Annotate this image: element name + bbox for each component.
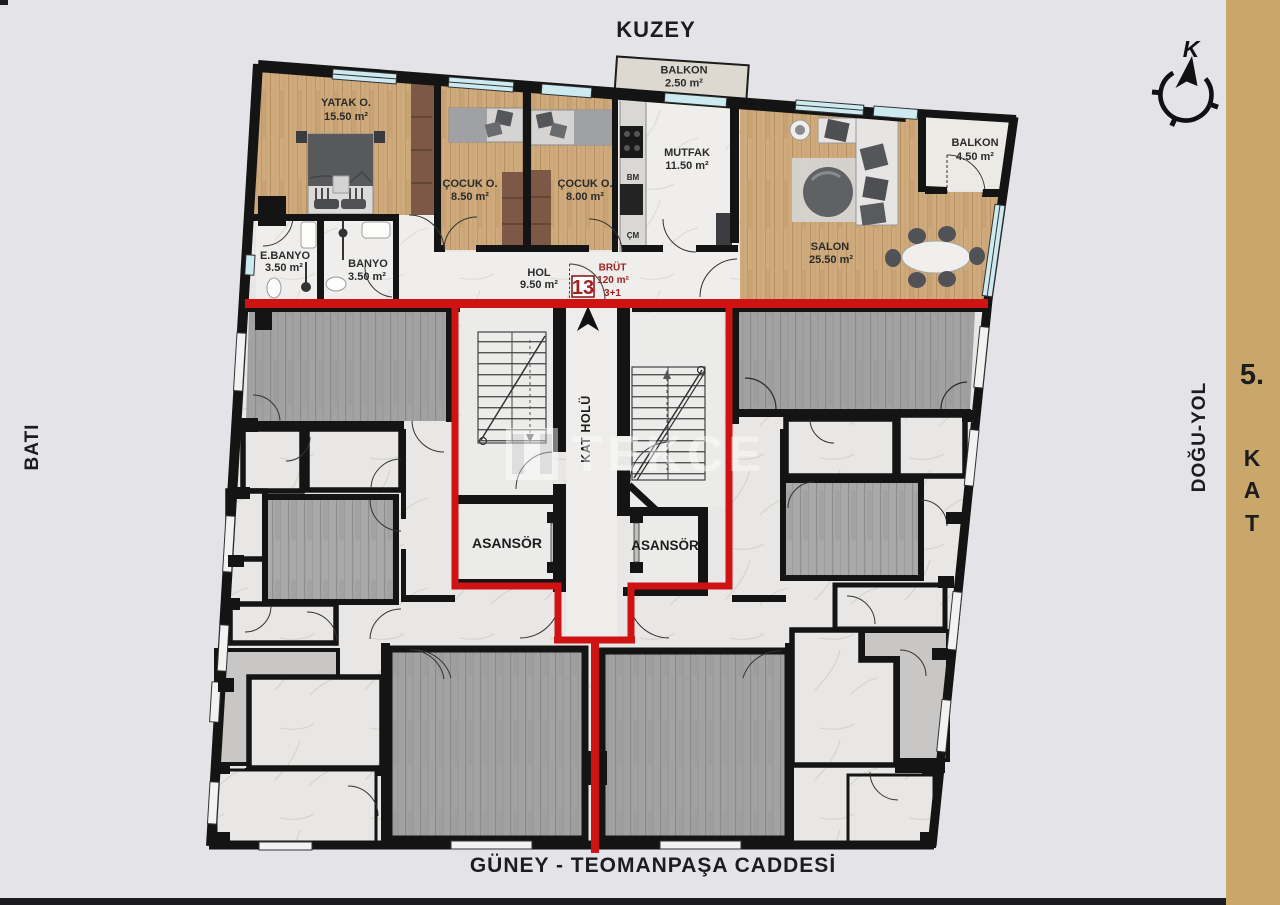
svg-text:ÇM: ÇM xyxy=(627,231,640,240)
svg-text:3.50 m²: 3.50 m² xyxy=(348,271,386,283)
svg-text:SALON: SALON xyxy=(811,241,850,253)
svg-text:13: 13 xyxy=(572,277,594,299)
svg-text:A: A xyxy=(1244,477,1261,503)
svg-text:GÜNEY - TEOMANPAŞA CADDESİ: GÜNEY - TEOMANPAŞA CADDESİ xyxy=(470,854,836,877)
svg-text:KUZEY: KUZEY xyxy=(616,17,696,42)
svg-text:T: T xyxy=(1245,510,1259,536)
svg-text:3.50 m²: 3.50 m² xyxy=(265,262,303,274)
svg-text:5.: 5. xyxy=(1240,359,1264,391)
svg-text:ASANSÖR: ASANSÖR xyxy=(631,538,699,553)
svg-text:3+1: 3+1 xyxy=(604,288,621,299)
svg-text:25.50 m²: 25.50 m² xyxy=(809,254,853,266)
svg-text:TEKCE: TEKCE xyxy=(572,426,766,482)
svg-text:11.50 m²: 11.50 m² xyxy=(665,160,709,172)
svg-text:ÇOCUK O.: ÇOCUK O. xyxy=(443,178,498,190)
svg-text:DOĞU-YOL: DOĞU-YOL xyxy=(1188,382,1210,492)
svg-text:YATAK O.: YATAK O. xyxy=(321,97,371,109)
svg-text:BALKON: BALKON xyxy=(951,137,998,149)
svg-text:BALKON: BALKON xyxy=(660,65,707,77)
svg-text:8.50 m²: 8.50 m² xyxy=(451,191,489,203)
svg-text:4.50 m²: 4.50 m² xyxy=(956,151,994,163)
svg-text:120 m²: 120 m² xyxy=(597,275,629,286)
svg-text:BM: BM xyxy=(627,173,640,182)
svg-text:BANYO: BANYO xyxy=(348,258,388,270)
svg-text:2.50 m²: 2.50 m² xyxy=(665,78,703,90)
svg-text:8.00 m²: 8.00 m² xyxy=(566,191,604,203)
svg-text:K: K xyxy=(1183,36,1201,62)
svg-text:BATI: BATI xyxy=(22,424,43,471)
svg-text:K: K xyxy=(1244,445,1261,471)
svg-text:HOL: HOL xyxy=(527,267,551,279)
svg-text:MUTFAK: MUTFAK xyxy=(664,147,710,159)
svg-text:E.BANYO: E.BANYO xyxy=(260,250,311,262)
svg-text:9.50 m²: 9.50 m² xyxy=(520,279,558,291)
svg-text:15.50 m²: 15.50 m² xyxy=(324,111,368,123)
svg-text:ASANSÖR: ASANSÖR xyxy=(472,535,542,551)
svg-text:ÇOCUK O.: ÇOCUK O. xyxy=(558,178,613,190)
svg-text:BRÜT: BRÜT xyxy=(599,261,627,274)
